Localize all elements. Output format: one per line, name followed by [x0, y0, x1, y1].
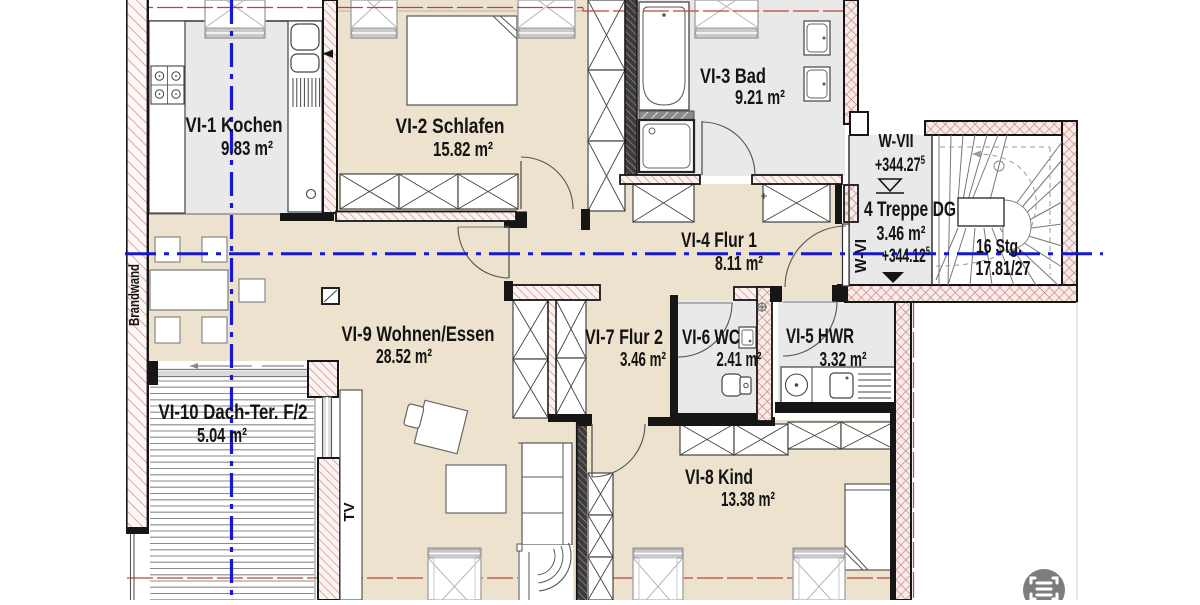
svg-text:TV: TV: [341, 503, 358, 522]
svg-text:9.21 m²: 9.21 m²: [735, 87, 785, 109]
svg-text:3.46 m²: 3.46 m²: [620, 349, 666, 371]
svg-text:W-VII: W-VII: [879, 131, 914, 151]
svg-text:W-VI: W-VI: [853, 239, 870, 273]
svg-text:17.81/27: 17.81/27: [976, 258, 1031, 280]
svg-text:2.41 m²: 2.41 m²: [717, 349, 762, 371]
svg-text:VI-3 Bad: VI-3 Bad: [700, 65, 766, 88]
svg-text:3.32 m²: 3.32 m²: [820, 349, 867, 371]
svg-text:13.38 m²: 13.38 m²: [721, 489, 775, 511]
svg-text:9.83 m²: 9.83 m²: [221, 138, 273, 160]
svg-text:3.46 m²: 3.46 m²: [877, 223, 926, 245]
svg-text:VI-1 Kochen: VI-1 Kochen: [186, 114, 283, 137]
svg-text:4 Treppe DG: 4 Treppe DG: [864, 198, 956, 221]
svg-text:28.52 m²: 28.52 m²: [376, 346, 432, 368]
svg-text:VI-8 Kind: VI-8 Kind: [685, 466, 753, 489]
svg-text:16 Stg.: 16 Stg.: [976, 236, 1022, 258]
svg-text:VI-2 Schlafen: VI-2 Schlafen: [396, 115, 505, 138]
svg-text:VI-9 Wohnen/Essen: VI-9 Wohnen/Essen: [342, 323, 495, 346]
svg-text:VI-5 HWR: VI-5 HWR: [786, 325, 854, 348]
svg-text:5.04 m²: 5.04 m²: [197, 425, 247, 447]
svg-text:VI-6 WC: VI-6 WC: [682, 326, 740, 349]
svg-text:VI-4 Flur 1: VI-4 Flur 1: [681, 229, 757, 252]
svg-text:+344.125: +344.125: [882, 244, 930, 267]
svg-text:Brandwand: Brandwand: [126, 264, 143, 326]
svg-text:VI-7 Flur 2: VI-7 Flur 2: [585, 326, 663, 349]
svg-text:15.82 m²: 15.82 m²: [433, 139, 493, 161]
svg-text:VI-10 Dach-Ter. F/2: VI-10 Dach-Ter. F/2: [159, 401, 308, 424]
svg-text:+344.275: +344.275: [875, 153, 925, 176]
svg-text:8.11 m²: 8.11 m²: [715, 253, 763, 275]
